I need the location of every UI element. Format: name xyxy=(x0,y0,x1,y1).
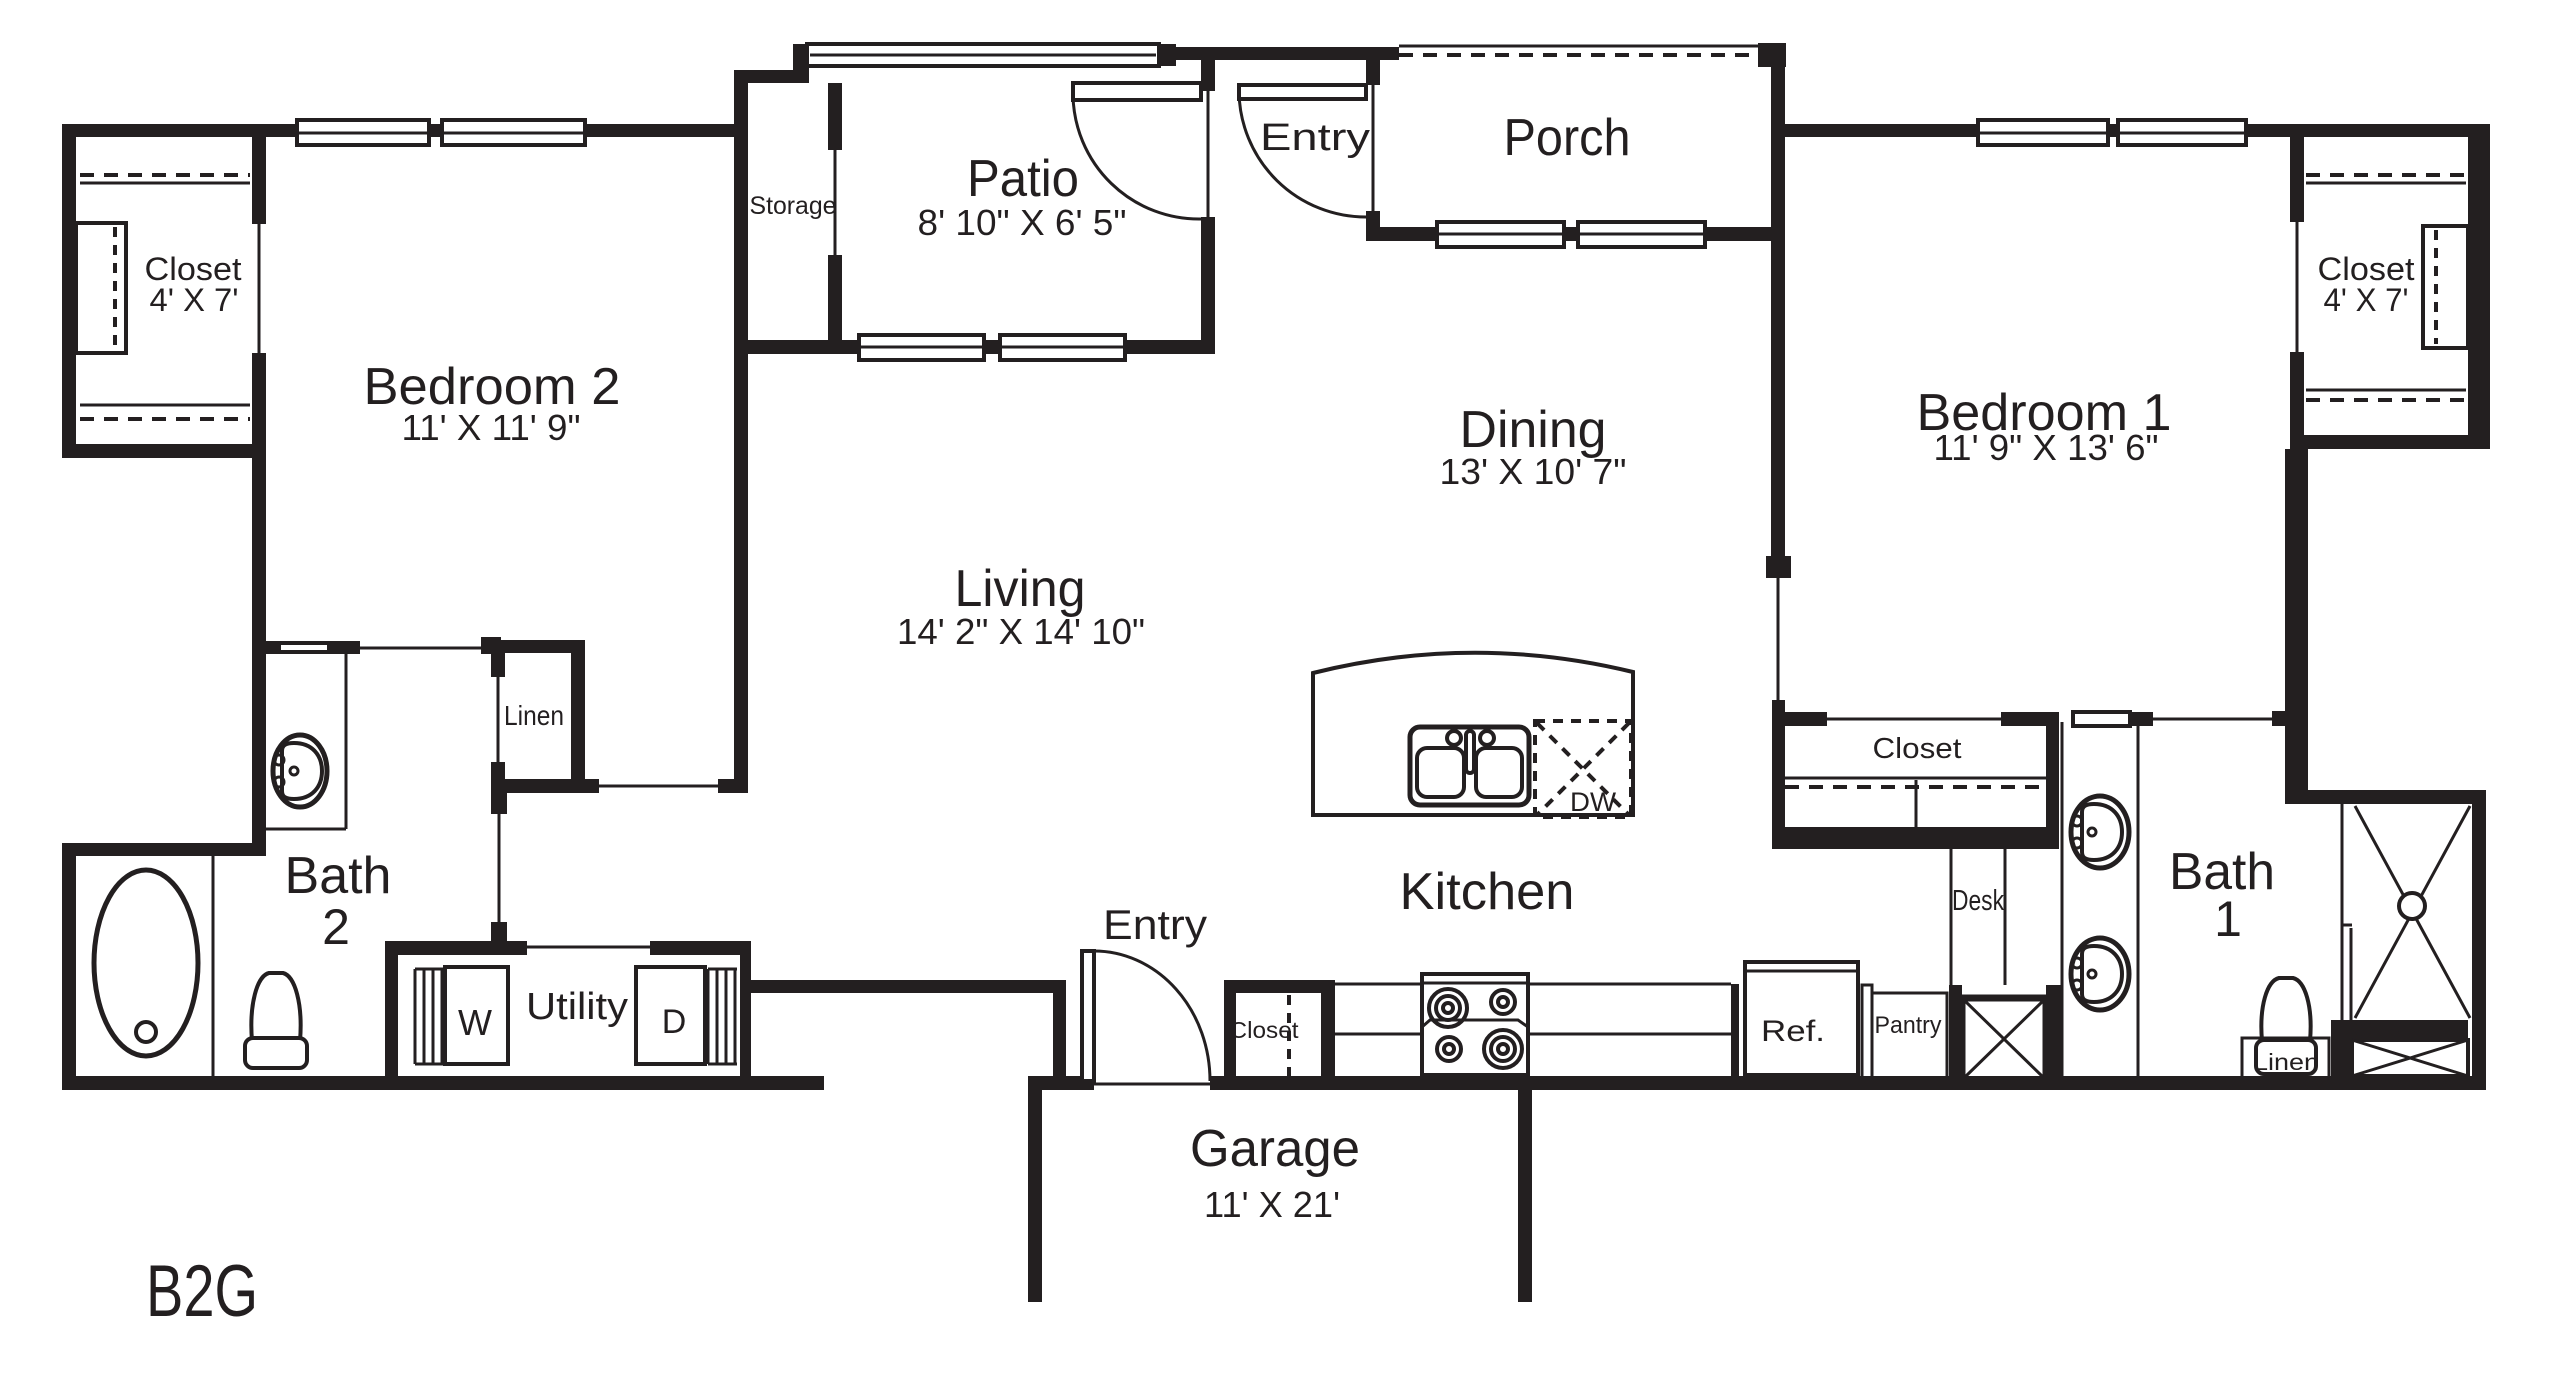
svg-text:Porch: Porch xyxy=(1504,109,1631,167)
svg-text:Desk: Desk xyxy=(1952,885,2004,917)
svg-text:B2G: B2G xyxy=(146,1251,258,1332)
svg-text:Closet: Closet xyxy=(1873,733,1962,765)
svg-text:Closet: Closet xyxy=(1230,1017,1300,1043)
svg-text:Ref.: Ref. xyxy=(1761,1015,1825,1048)
svg-text:Pantry: Pantry xyxy=(1875,1012,1942,1039)
svg-text:D: D xyxy=(662,1003,687,1041)
svg-text:Storage: Storage xyxy=(750,192,837,220)
svg-text:13' X 10' 7": 13' X 10' 7" xyxy=(1440,451,1627,492)
svg-text:Utility: Utility xyxy=(526,986,628,1028)
svg-text:Patio: Patio xyxy=(967,150,1079,208)
svg-text:Entry: Entry xyxy=(1103,901,1207,948)
svg-text:1: 1 xyxy=(2214,891,2242,947)
svg-text:Bath: Bath xyxy=(285,847,392,905)
svg-text:11' X 11' 9": 11' X 11' 9" xyxy=(402,407,581,448)
svg-text:Kitchen: Kitchen xyxy=(1400,863,1575,921)
svg-text:Linen: Linen xyxy=(504,700,564,731)
svg-text:DW: DW xyxy=(1570,787,1617,817)
svg-text:8' 10" X 6' 5": 8' 10" X 6' 5" xyxy=(918,202,1127,243)
svg-text:Garage: Garage xyxy=(1190,1120,1360,1178)
svg-text:Linen: Linen xyxy=(2253,1049,2319,1075)
svg-text:4' X 7': 4' X 7' xyxy=(150,282,239,318)
svg-text:14' 2" X 14' 10": 14' 2" X 14' 10" xyxy=(897,611,1145,652)
svg-text:11' 9" X 13' 6": 11' 9" X 13' 6" xyxy=(1934,427,2159,468)
svg-text:11' X 21': 11' X 21' xyxy=(1204,1184,1340,1225)
svg-text:Living: Living xyxy=(955,560,1086,618)
svg-text:4' X 7': 4' X 7' xyxy=(2324,282,2409,318)
svg-text:2: 2 xyxy=(322,899,350,955)
svg-text:W: W xyxy=(458,1002,492,1043)
svg-text:Entry: Entry xyxy=(1260,117,1370,159)
